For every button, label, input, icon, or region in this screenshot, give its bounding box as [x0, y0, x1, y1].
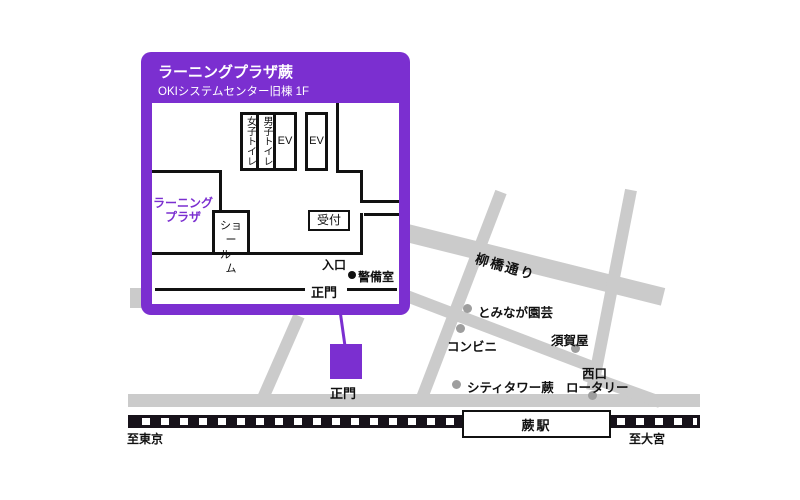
- wall-shaft-vertical: [336, 103, 339, 173]
- station-box: 蕨駅: [462, 410, 611, 438]
- inset-subtitle: OKIシステムセンター旧棟 1F: [158, 83, 309, 99]
- wall-left-room-top: [152, 170, 222, 173]
- road-main-gate: [257, 314, 304, 401]
- room-reception: 受付: [308, 210, 350, 231]
- railway-line: [128, 415, 700, 428]
- gate-line-left: [155, 288, 305, 291]
- reception-label: 受付: [317, 213, 341, 227]
- room-elevator-2: EV: [305, 112, 328, 171]
- landmark-dot-city-tower: [452, 380, 461, 389]
- inset-title: ラーニングプラザ蕨: [158, 61, 293, 82]
- wall-corridor-top: [336, 170, 363, 173]
- landmark-label-convenience: コンビニ: [447, 336, 497, 355]
- landmark-label-city-tower: シティタワー蕨: [467, 377, 554, 396]
- wall-entrance-stub-lower: [364, 213, 399, 216]
- landmark-dot-convenience: [456, 324, 465, 333]
- toilet-women-label: 女子トイレ: [245, 116, 255, 166]
- floor-plan: 女子トイレ 男子トイレ EV EV ラーニング プ: [152, 103, 399, 304]
- security-dot: [348, 271, 356, 279]
- station-label: 蕨駅: [521, 415, 551, 434]
- wall-corridor-right-upper: [360, 170, 363, 203]
- elevator-2-label: EV: [309, 135, 324, 147]
- building-marker: [330, 344, 362, 379]
- access-map-page: 柳橋通り とみなが園芸 コンビニ 須賀屋 シティタワー蕨 西口 ロータリー 正門…: [0, 0, 800, 500]
- wall-corridor-right-lower: [360, 213, 363, 255]
- learning-plaza-line2: プラザ: [165, 210, 201, 224]
- entrance-label: 入口: [322, 256, 346, 273]
- road-vertical-left: [416, 190, 507, 402]
- landmark-dot-tominaga: [463, 304, 472, 313]
- wall-entrance-stub-upper: [360, 200, 399, 203]
- direction-tokyo-label: 至東京: [127, 430, 163, 447]
- gate-line-right: [347, 288, 397, 291]
- direction-omiya-label: 至大宮: [629, 430, 665, 447]
- wall-left-room-right: [219, 170, 222, 213]
- wall-building-bottom: [152, 252, 363, 255]
- inset-connector-line: [339, 314, 346, 345]
- plan-main-gate-label: 正門: [311, 282, 337, 301]
- showroom-line2: ルーム: [220, 249, 242, 275]
- toilet-men-label: 男子トイレ: [261, 116, 271, 166]
- security-label: 警備室: [358, 268, 394, 285]
- landmark-label-sugaya: 須賀屋: [551, 330, 589, 349]
- landmark-label-tominaga: とみなが園芸: [478, 302, 553, 321]
- showroom-line1: ショー: [220, 220, 242, 246]
- landmark-label-west-rotary-line2: ロータリー: [566, 377, 629, 396]
- room-elevator-1: EV: [273, 112, 297, 171]
- map-main-gate-label: 正門: [330, 383, 356, 402]
- learning-plaza-label: ラーニング プラザ: [152, 196, 214, 225]
- floor-plan-inset: ラーニングプラザ蕨 OKIシステムセンター旧棟 1F 女子トイレ 男子トイレ E…: [141, 52, 410, 315]
- learning-plaza-line1: ラーニング: [153, 196, 213, 210]
- elevator-1-label: EV: [278, 135, 293, 147]
- room-showroom: ショー ルーム: [212, 210, 250, 255]
